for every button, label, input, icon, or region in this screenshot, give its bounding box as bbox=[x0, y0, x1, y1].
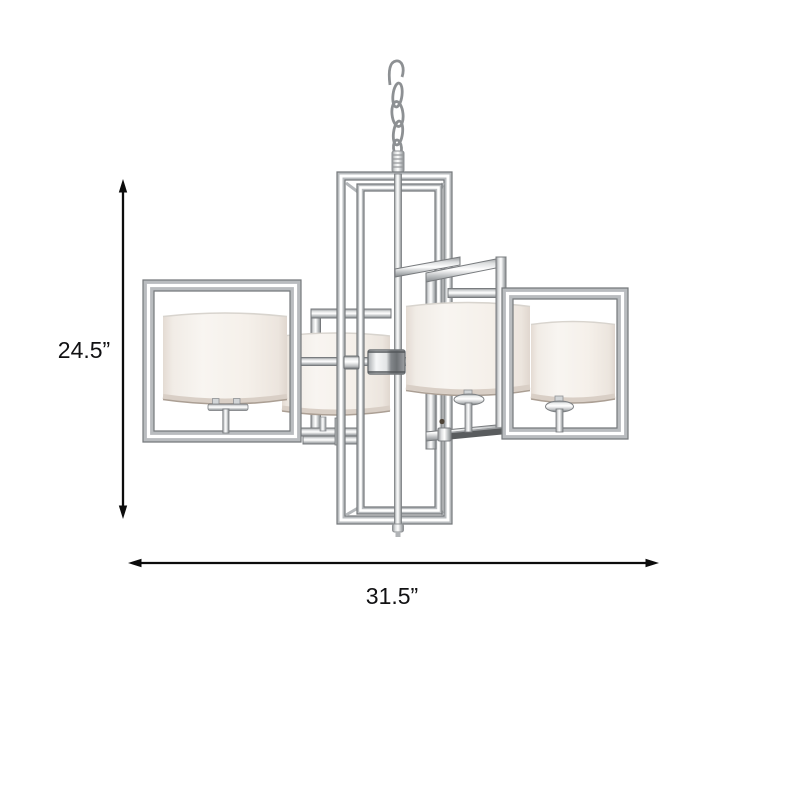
svg-text:31.5”: 31.5” bbox=[366, 583, 418, 609]
svg-text:24.5”: 24.5” bbox=[58, 337, 110, 363]
